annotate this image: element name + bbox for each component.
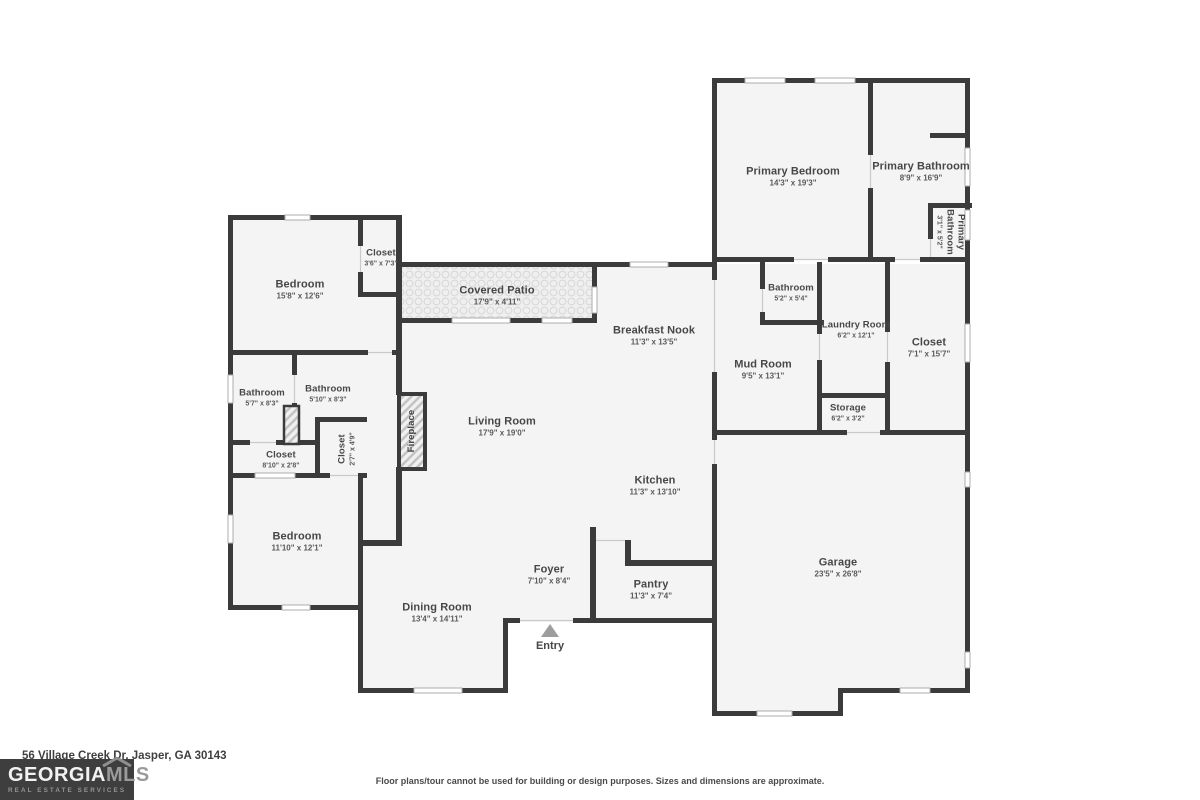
floor-plan-drawing	[0, 0, 1200, 800]
logo-wordmark: GEORGIAMLS	[8, 765, 134, 785]
room-label-dining-room: Dining Room 13'4" x 14'11"	[402, 601, 472, 626]
georgia-mls-logo: GEORGIAMLS REAL ESTATE SERVICES	[0, 759, 134, 800]
room-label-breakfast-nook: Breakfast Nook 11'3" x 13'5"	[613, 324, 695, 349]
room-label-garage: Garage 23'5" x 26'8"	[815, 556, 862, 581]
room-label-primary-bedroom: Primary Bedroom 14'3" x 19'3"	[746, 165, 840, 190]
room-label-closet-upper-left: Closet 3'6" x 7'3"	[364, 247, 397, 268]
room-label-closet-primary: Closet 7'1" x 15'7"	[908, 336, 951, 361]
logo-roof-icon	[102, 757, 132, 767]
floor-plan-page: Primary Bedroom 14'3" x 19'3" Primary Ba…	[0, 0, 1200, 800]
room-label-bathroom-mud: Bathroom 5'2" x 5'4"	[768, 282, 814, 303]
room-label-fireplace: Fireplace	[406, 410, 418, 453]
logo-mls-text: MLS	[106, 765, 150, 785]
room-label-bedroom-upper-left: Bedroom 15'8" x 12'6"	[276, 278, 325, 303]
entry-label: Entry	[536, 640, 564, 652]
entry-arrow-icon	[541, 624, 559, 637]
room-label-storage: Storage 6'2" x 3'2"	[830, 402, 866, 423]
room-label-bedroom-lower-left: Bedroom 11'10" x 12'1"	[272, 530, 323, 555]
room-label-closet-small: Closet 2'7" x 4'9"	[336, 432, 357, 465]
room-label-covered-patio: Covered Patio 17'9" x 4'11"	[459, 284, 534, 309]
room-label-primary-bathroom: Primary Bathroom 8'9" x 16'9"	[872, 160, 970, 185]
room-label-bathroom-left-1: Bathroom 5'7" x 8'3"	[239, 387, 285, 408]
room-label-living-room: Living Room 17'9" x 19'0"	[468, 415, 536, 440]
room-label-pantry: Pantry 11'3" x 7'4"	[630, 578, 672, 603]
room-label-closet-hall: Closet 8'10" x 2'8"	[262, 449, 299, 470]
logo-georgia-text: GEORGIA	[8, 765, 106, 785]
room-label-foyer: Foyer 7'10" x 8'4"	[528, 563, 571, 588]
room-label-mud-room: Mud Room 9'5" x 13'1"	[734, 358, 792, 383]
disclaimer-text: Floor plans/tour cannot be used for buil…	[0, 776, 1200, 786]
shower-fixture	[284, 406, 299, 444]
room-label-kitchen: Kitchen 11'3" x 13'10"	[630, 474, 681, 499]
room-label-laundry-room: Laundry Room 6'2" x 12'1"	[822, 319, 890, 340]
room-label-primary-water-closet: Primary Bathroom 3'1" x 5'2"	[935, 202, 966, 262]
room-label-bathroom-left-2: Bathroom 5'10" x 8'3"	[305, 383, 351, 404]
logo-tagline: REAL ESTATE SERVICES	[8, 787, 134, 794]
